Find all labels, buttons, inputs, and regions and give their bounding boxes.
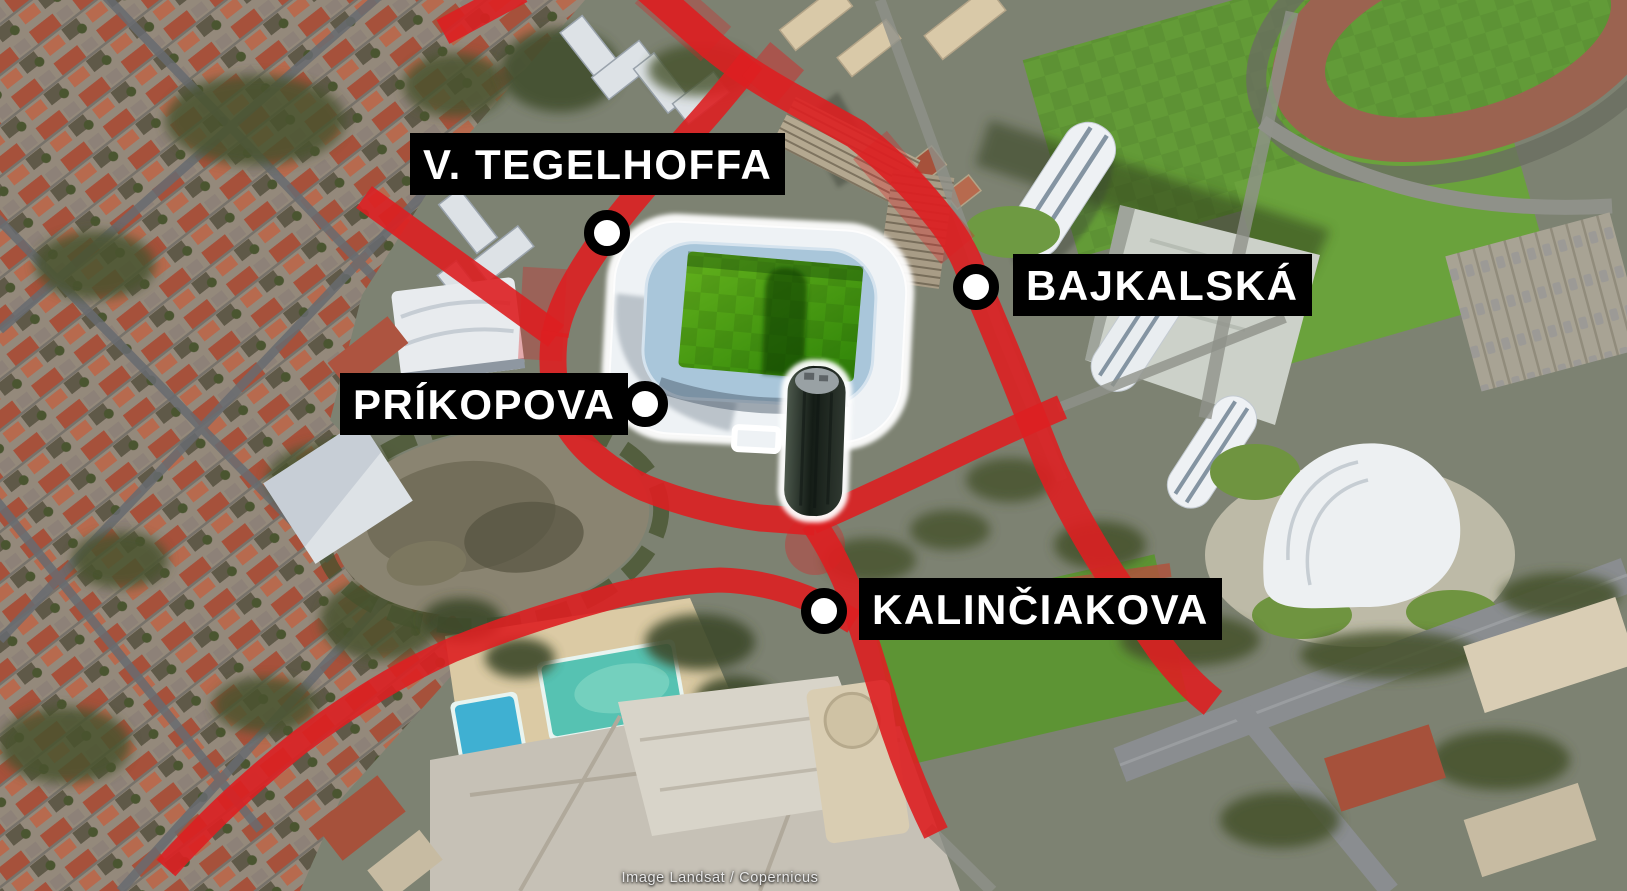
- map-canvas: V. TEGELHOFFA BAJKALSKÁ PRÍKOPOVA KALINČ…: [0, 0, 1627, 891]
- imagery-attribution: Image Landsat / Copernicus: [540, 870, 900, 886]
- street-marker-dot-prikopova: [622, 381, 668, 427]
- street-marker-dot-v-tegelhoffa: [584, 210, 630, 256]
- satellite-basemap: [0, 0, 1627, 891]
- stadium-tower: [783, 365, 846, 517]
- street-label-prikopova: PRÍKOPOVA: [340, 373, 628, 435]
- street-marker-dot-kalinciakova: [801, 588, 847, 634]
- street-label-kalinciakova: KALINČIAKOVA: [859, 578, 1222, 640]
- stadium-pitch: [678, 251, 863, 382]
- street-label-bajkalska: BAJKALSKÁ: [1013, 254, 1312, 316]
- street-marker-dot-bajkalska: [953, 264, 999, 310]
- street-label-v-tegelhoffa: V. TEGELHOFFA: [410, 133, 785, 195]
- stadium-entrance: [734, 427, 779, 451]
